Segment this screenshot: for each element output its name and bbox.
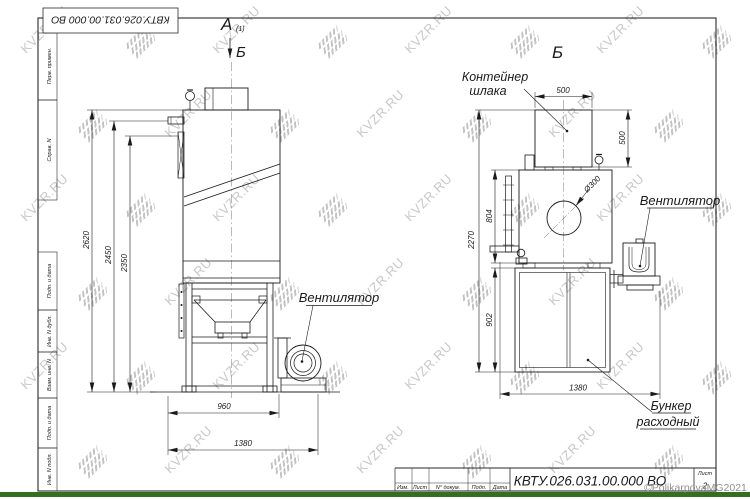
sidebar-label: Инв. N подл. (47, 453, 53, 485)
titleblock-col: N° докум. (436, 485, 460, 491)
left-view-fan (274, 338, 326, 392)
supply-bunker (515, 268, 610, 372)
sidebar-label: Инв. N дубл. (47, 315, 53, 347)
left-view-dims: 2620 2450 2350 960 1380 (82, 110, 318, 455)
bunker-label-line2: расходный (636, 415, 700, 429)
dim-height-total: 2620 (82, 231, 91, 250)
dim-bunker-h: 902 (485, 313, 494, 327)
container-label-line1: Контейнер (462, 70, 528, 84)
view-b-title: Б (552, 43, 563, 62)
dim-width-frame: 960 (217, 402, 231, 411)
dim-height-door: 2350 (120, 254, 129, 273)
sidebar-label: Взам. инв. N (47, 359, 53, 391)
stamp-doc-number: КВТУ.026.031.00.000 ВО (51, 14, 170, 26)
right-view-dims: 500 500 2270 804 902 1380 (467, 86, 660, 399)
dim-container-h: 500 (618, 131, 627, 145)
left-view-body (150, 88, 340, 392)
titleblock-col: Дата (492, 485, 508, 491)
titleblock-col: Лист (412, 485, 428, 491)
dim-height-pipe: 2450 (104, 246, 113, 265)
dim-height-total: 2270 (467, 231, 476, 250)
view-callouts: А (1) Б (220, 15, 246, 61)
dim-width-total: 1380 (569, 384, 587, 393)
sidebar-label: Справ. N (47, 138, 53, 161)
left-fan-label: Вентилятор (299, 290, 380, 305)
right-view-fan (610, 239, 660, 290)
copyright-watermark: ©PolikarpovaMG2021 (644, 482, 747, 494)
bottom-green-bar (0, 492, 750, 497)
titleblock-col: Изм. (397, 485, 409, 491)
container-label-line2: шлака (469, 84, 506, 98)
bunker-label-line1: Бункер (651, 399, 692, 413)
dim-width-total: 1380 (234, 439, 252, 448)
view-label-b: Б (236, 44, 246, 61)
drawing-canvas: Перв. примен. Справ. N Подп. и дата Инв.… (0, 0, 750, 500)
sheet-frame (38, 8, 716, 491)
right-view: Б (462, 43, 720, 429)
left-view: Вентилятор (82, 15, 379, 455)
titleblock-col: Подп. (472, 485, 487, 491)
dim-container-w: 500 (556, 86, 570, 95)
view-label-a-sub: (1) (236, 26, 245, 33)
right-view-body (490, 155, 612, 269)
sidebar-label: Перв. примен. (47, 48, 53, 85)
dim-body-h: 804 (485, 209, 494, 223)
view-label-a: А (220, 15, 232, 34)
right-fan-label: Вентилятор (640, 193, 721, 208)
blueprint-sheet: KVZR.RUKVZR.RUKVZR.RUKVZR.RUKVZR.RUKVZR.… (0, 0, 750, 500)
sheet-label: Лист (697, 471, 713, 477)
sidebar-label: Подп. и дата (47, 264, 53, 298)
sidebar-label: Подп. и дата (47, 406, 53, 440)
left-view-support-frame (182, 283, 277, 392)
dim-diameter: Ø300 (581, 174, 602, 195)
